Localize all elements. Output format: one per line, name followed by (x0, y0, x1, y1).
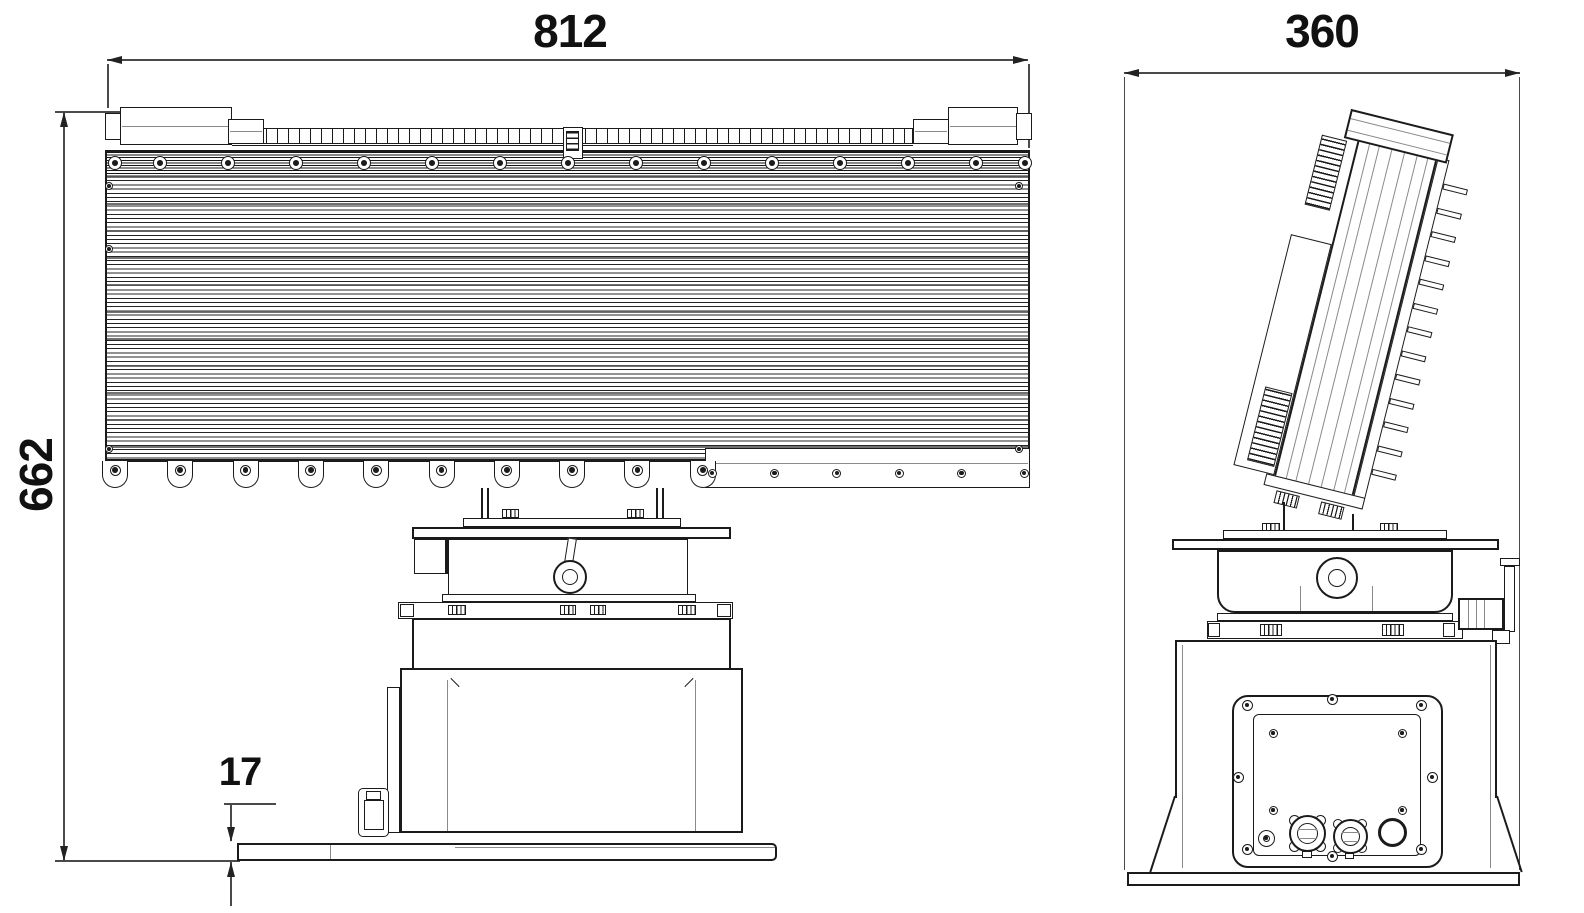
turntable-top-plate (1223, 530, 1447, 539)
dimension-front-height: 662 (13, 415, 59, 535)
plate-screw-icon (1269, 729, 1278, 738)
frame-bolt-icon (1327, 694, 1338, 705)
heatsink-fin (1395, 374, 1421, 386)
frame-bolt-icon (1233, 772, 1244, 783)
tab-bolt-icon (175, 465, 186, 476)
cable-connector-inner (364, 800, 384, 830)
dimension-front-width: 812 (500, 8, 640, 54)
ext-line (1519, 77, 1520, 870)
heatsink-fin (1371, 469, 1397, 481)
dimension-arrow (1124, 69, 1139, 77)
connector-tab (1345, 853, 1354, 859)
ext-line (1124, 77, 1125, 870)
pedestal-skirt (400, 668, 743, 833)
body-seam (1490, 645, 1491, 868)
edge-bolt-icon (105, 445, 113, 453)
connector-tab (1302, 851, 1312, 858)
heatsink-fin (1413, 302, 1439, 314)
flange-bolt (678, 605, 696, 615)
bracket-seam (950, 126, 1016, 127)
flange-end (400, 604, 414, 617)
heatsink-fin (1407, 326, 1433, 338)
connector-rib (1476, 600, 1477, 628)
skirt-seam (447, 680, 448, 831)
skirt-seam (695, 680, 696, 831)
turntable-flange (1207, 621, 1463, 639)
strip-bolt-icon (957, 469, 966, 478)
round-connector-b-inner (1341, 827, 1360, 846)
tab-bolt-icon (110, 465, 121, 476)
dimension-arrow (227, 827, 235, 842)
dimension-arrow (1505, 69, 1520, 77)
tab-bolt-icon (305, 465, 316, 476)
dimension-arrow (107, 56, 122, 64)
tab-bolt-icon (240, 465, 251, 476)
heatsink-fin (1383, 421, 1409, 433)
plate-bolt (627, 509, 644, 518)
side-connector-arm (1504, 566, 1515, 632)
side-connector-cap (1500, 558, 1520, 566)
flange-end (1208, 623, 1220, 637)
frame-bolt-icon (1416, 700, 1427, 711)
strip-bolt-icon (895, 469, 904, 478)
heatsink-fin (1436, 207, 1462, 219)
bracket-seam (915, 131, 947, 132)
dimension-arrow (60, 846, 68, 861)
washer-dot-icon (1263, 835, 1270, 842)
panel-top-bolt-icon (425, 156, 439, 170)
panel-bottom-edge (106, 460, 705, 462)
dim-line-360 (1124, 72, 1520, 74)
dimension-arrow (1013, 56, 1028, 64)
strip-bolt-icon (770, 469, 779, 478)
drawing-sheet: 812 662 17 360 (0, 0, 1584, 913)
base-plate-seam (330, 845, 331, 859)
heatsink-fin (1419, 279, 1445, 291)
base-plate (237, 843, 777, 861)
panel-top-bolt-icon (221, 156, 235, 170)
connector-line (1298, 838, 1317, 839)
flange-end (1443, 623, 1455, 637)
heatsink-fin (1389, 398, 1415, 410)
heatsink-fin (1425, 255, 1451, 267)
dim-line-662 (63, 112, 65, 861)
heatsink-fin (1377, 445, 1403, 457)
pedestal-rail (442, 594, 696, 602)
flange-bolt (448, 605, 466, 615)
flange-bolt (1260, 624, 1282, 636)
dimension-base-thickness: 17 (205, 752, 275, 792)
ground-line (55, 860, 240, 862)
flange-bolt (590, 605, 606, 615)
connector-rib (1484, 600, 1485, 628)
connector-rib (1468, 600, 1469, 628)
edge-bolt-icon (1015, 445, 1023, 453)
base-slab (1127, 872, 1520, 886)
frame-bolt-icon (1416, 844, 1427, 855)
frame-bolt-icon (1242, 700, 1253, 711)
frame-bolt-icon (1327, 851, 1338, 862)
plate-screw-icon (1398, 729, 1407, 738)
tab-bolt-icon (436, 465, 447, 476)
tab-bolt-icon (632, 465, 643, 476)
pedestal-upper-plate (463, 518, 681, 527)
corner-bracket-left-lip (105, 113, 121, 140)
body-flare (1149, 796, 1176, 873)
gland-ring (1378, 818, 1407, 847)
turntable-plate (1172, 539, 1499, 550)
lifting-eye-inner (562, 569, 578, 585)
side-connector-block (1458, 598, 1504, 630)
support-post (1283, 502, 1285, 532)
strip-bolt-icon (1020, 469, 1029, 478)
heatsink-fin (1430, 231, 1456, 243)
panel-lower-right-strip (705, 448, 1030, 488)
antenna-side-view (1232, 104, 1490, 534)
panel-top-bolt-icon (833, 156, 847, 170)
panel-top-bolt-icon (357, 156, 371, 170)
ext-line (107, 64, 109, 108)
panel-top-bolt-icon (697, 156, 711, 170)
body-seam (1182, 645, 1183, 868)
edge-bolt-icon (105, 245, 113, 253)
plate-screw-icon (1269, 806, 1278, 815)
frame-bolt-icon (1427, 772, 1438, 783)
connector-line (1298, 829, 1317, 830)
support-post (662, 488, 664, 519)
housing-divider (445, 539, 447, 574)
panel-top-bolt-icon (289, 156, 303, 170)
cable-connector-top (366, 791, 381, 800)
heatsink-fin (1442, 184, 1468, 196)
tab-bolt-icon (501, 465, 512, 476)
bracket-seam (230, 131, 262, 132)
connector-line (1342, 832, 1359, 833)
support-post (487, 488, 489, 519)
dimension-arrow (227, 862, 235, 877)
strip-seam (707, 463, 1028, 464)
flange-end (717, 604, 731, 617)
panel-top-bolt-icon (1018, 156, 1032, 170)
flange-bolt (560, 605, 576, 615)
tab-bolt-icon (371, 465, 382, 476)
bracket-seam (122, 126, 230, 127)
strip-bolt-icon (708, 469, 717, 478)
support-post (481, 488, 483, 519)
panel-top-bolt-icon (153, 156, 167, 170)
center-boss-inner (1328, 569, 1346, 587)
strip-bolt-icon (832, 469, 841, 478)
panel-top-bolt-icon (969, 156, 983, 170)
panel-top-bolt-icon (493, 156, 507, 170)
dim-line-812 (107, 59, 1028, 61)
housing-side-block (414, 539, 448, 574)
base-plate-seam (455, 847, 775, 848)
heatsink-fin (1401, 350, 1427, 362)
tab-bolt-icon (697, 465, 708, 476)
edge-bolt-icon (105, 182, 113, 190)
drum-seam (1300, 586, 1301, 611)
flange-bolt (1382, 624, 1404, 636)
plate-bolt (502, 509, 519, 518)
panel-top-bolt-icon (901, 156, 915, 170)
plate-screw-icon (1398, 806, 1407, 815)
panel-fin-face (107, 176, 1028, 459)
connector-line (1342, 841, 1359, 842)
support-post (656, 488, 658, 519)
round-connector-a-inner (1297, 823, 1318, 844)
panel-top-bolt-icon (629, 156, 643, 170)
dimension-side-depth: 360 (1252, 8, 1392, 54)
dim-17-shelf (224, 803, 276, 805)
edge-bolt-icon (1015, 182, 1023, 190)
panel-top-bolt-icon (108, 156, 122, 170)
panel-top-bolt-icon (561, 156, 575, 170)
center-joint-spring (566, 131, 579, 151)
tab-bolt-icon (567, 465, 578, 476)
drum-seam (1372, 586, 1373, 611)
corner-bracket-right-lip (1016, 113, 1032, 140)
panel-top-bolt-icon (765, 156, 779, 170)
dimension-arrow (60, 112, 68, 127)
side-serration-upper (1305, 135, 1348, 211)
frame-bolt-icon (1242, 844, 1253, 855)
turntable-rail (1217, 613, 1453, 621)
